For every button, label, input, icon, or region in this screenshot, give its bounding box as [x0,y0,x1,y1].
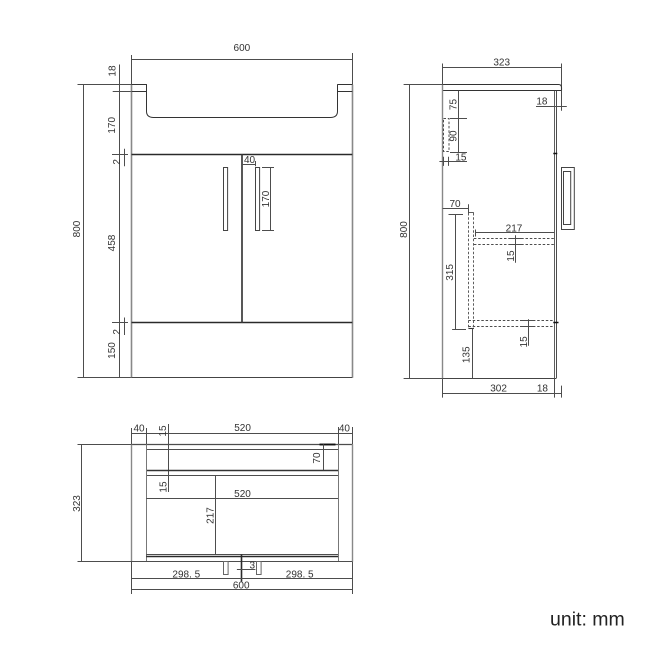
svg-text:15: 15 [506,250,517,262]
svg-text:40: 40 [244,155,256,166]
svg-text:15: 15 [519,336,530,348]
svg-text:75: 75 [448,99,459,111]
svg-text:600: 600 [234,43,251,54]
svg-text:800: 800 [72,220,83,237]
svg-text:170: 170 [107,117,118,134]
svg-text:135: 135 [462,346,473,363]
svg-text:170: 170 [261,190,272,207]
svg-text:18: 18 [108,65,119,77]
svg-text:800: 800 [399,221,410,238]
svg-text:70: 70 [312,452,323,464]
svg-text:458: 458 [107,234,118,251]
svg-text:323: 323 [72,495,83,512]
svg-text:2: 2 [112,329,123,335]
svg-text:90: 90 [448,130,459,142]
svg-text:18: 18 [536,96,548,107]
svg-text:40: 40 [133,424,145,435]
svg-text:315: 315 [445,264,456,281]
svg-text:2: 2 [112,159,123,165]
svg-text:217: 217 [205,507,216,524]
svg-text:600: 600 [233,580,250,591]
svg-text:3: 3 [250,561,256,572]
svg-text:298. 5: 298. 5 [286,570,314,581]
svg-text:15: 15 [158,425,169,437]
svg-text:unit: mm: unit: mm [550,609,625,631]
svg-text:15: 15 [159,481,170,493]
svg-text:520: 520 [234,423,251,434]
svg-text:520: 520 [234,489,251,500]
svg-text:217: 217 [506,223,523,234]
svg-text:15: 15 [455,152,467,163]
svg-text:18: 18 [537,384,549,395]
svg-text:302: 302 [490,384,507,395]
svg-text:323: 323 [493,58,510,69]
svg-text:298. 5: 298. 5 [172,570,200,581]
svg-text:70: 70 [449,199,461,210]
svg-text:40: 40 [339,424,351,435]
svg-text:150: 150 [107,342,118,359]
